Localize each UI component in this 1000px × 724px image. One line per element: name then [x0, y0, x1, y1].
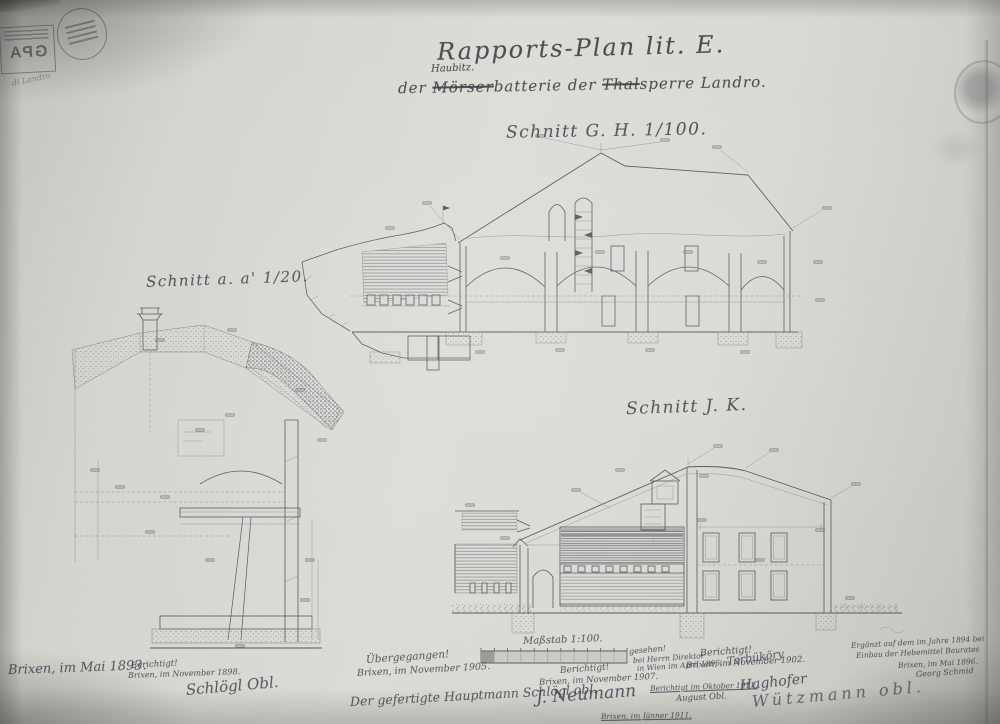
- subtitle-part1: der: [398, 79, 433, 98]
- photographed-plan-document: Rapports-Plan lit. E. Haubitz. der Mörse…: [0, 0, 1000, 724]
- scale-bar: [481, 648, 627, 663]
- plan-drawings-canvas: [0, 0, 1000, 724]
- title-inserted-word: Haubitz.: [431, 62, 475, 75]
- schnitt-gh-drawing: [302, 135, 832, 370]
- gpa-stamp: GPA: [0, 25, 56, 75]
- subtitle-struck-thal: Thal: [602, 75, 640, 94]
- subtitle-struck-moerser: Mörser: [432, 78, 494, 97]
- round-stamp-text-lines: [65, 20, 99, 49]
- label-schnitt-jk: Schnitt J. K.: [626, 395, 748, 419]
- faint-stamp-smudge: [926, 128, 986, 170]
- gpa-stamp-text: GPA: [8, 43, 48, 63]
- subtitle-part2: batterie der: [494, 76, 603, 96]
- schnitt-jk-drawing: [452, 445, 904, 638]
- gpa-stamp-smalltext: [5, 29, 50, 42]
- label-schnitt-gh: Schnitt G. H. 1/100.: [506, 119, 708, 143]
- schnitt-aa-drawing: [72, 308, 344, 648]
- annotation-jaenner-1911: Brixen, im Jänner 1911.: [601, 710, 692, 721]
- subtitle-part3: sperre Landro.: [639, 73, 766, 93]
